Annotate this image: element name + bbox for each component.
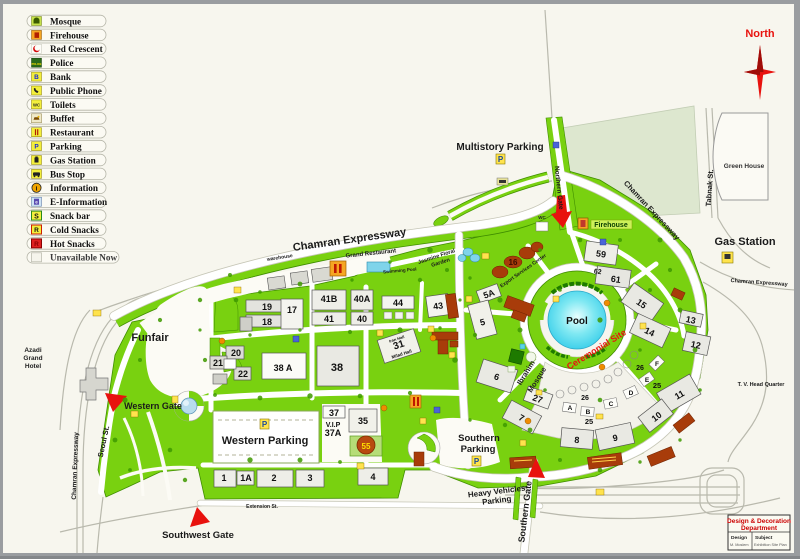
svg-text:Red Crescent: Red Crescent (50, 44, 104, 54)
svg-text:WC: WC (538, 215, 546, 220)
svg-text:Mosque: Mosque (50, 16, 81, 26)
svg-text:WC: WC (33, 103, 40, 108)
svg-text:37: 37 (329, 408, 339, 418)
svg-text:P: P (474, 457, 480, 466)
svg-text:40: 40 (357, 314, 367, 324)
svg-text:43: 43 (432, 300, 443, 311)
svg-text:Extension St.: Extension St. (246, 504, 278, 510)
svg-text:P: P (34, 144, 39, 151)
svg-text:Toilets: Toilets (50, 100, 76, 110)
svg-text:13: 13 (685, 314, 697, 326)
svg-text:Chamran Expressway: Chamran Expressway (730, 278, 788, 288)
svg-text:Southern: Southern (458, 433, 500, 444)
svg-text:C: C (609, 401, 614, 408)
svg-text:Public Phone: Public Phone (50, 86, 102, 96)
svg-text:Firehouse: Firehouse (50, 30, 89, 40)
svg-text:POLICE: POLICE (32, 62, 42, 66)
svg-text:B: B (586, 409, 591, 416)
svg-text:62: 62 (593, 268, 602, 276)
svg-text:19: 19 (262, 302, 272, 312)
svg-text:Department: Department (741, 525, 778, 532)
svg-text:Bus Stop: Bus Stop (50, 169, 85, 179)
svg-text:R: R (34, 241, 39, 248)
svg-text:21: 21 (213, 358, 223, 368)
svg-text:22: 22 (238, 369, 248, 379)
svg-text:Pool: Pool (566, 316, 588, 327)
svg-text:Buffet: Buffet (50, 114, 75, 124)
svg-text:Multistory Parking: Multistory Parking (456, 142, 543, 153)
svg-text:41: 41 (324, 314, 334, 324)
svg-text:Parking: Parking (461, 444, 496, 455)
svg-text:i: i (36, 185, 38, 192)
svg-text:Green House: Green House (724, 163, 765, 170)
svg-text:26: 26 (581, 395, 589, 402)
svg-text:Tabnak St.: Tabnak St. (704, 169, 716, 207)
svg-text:Bank: Bank (50, 72, 72, 82)
svg-text:A: A (568, 405, 573, 412)
svg-text:4: 4 (370, 472, 375, 482)
svg-text:Hotel: Hotel (25, 363, 41, 370)
svg-text:Firehouse: Firehouse (594, 222, 628, 229)
svg-text:61: 61 (610, 274, 621, 285)
svg-text:Chamran Expressway: Chamran Expressway (71, 432, 80, 500)
svg-text:38 A: 38 A (274, 363, 293, 373)
svg-text:E-Information: E-Information (50, 197, 107, 207)
svg-text:D: D (629, 390, 634, 397)
svg-text:Parking: Parking (50, 142, 82, 152)
svg-text:8: 8 (574, 435, 580, 445)
svg-text:Gas Station: Gas Station (714, 236, 775, 248)
svg-text:M. Moslem: M. Moslem (730, 543, 749, 547)
svg-text:Grand: Grand (23, 355, 42, 362)
svg-text:Exhibition Site Plan: Exhibition Site Plan (754, 543, 787, 547)
svg-text:16: 16 (509, 258, 518, 267)
svg-text:2: 2 (271, 473, 276, 483)
svg-text:Cold Snacks: Cold Snacks (50, 225, 99, 235)
svg-text:Southwest Gate: Southwest Gate (162, 530, 234, 541)
svg-text:38: 38 (331, 362, 343, 374)
svg-text:Funfair: Funfair (131, 332, 169, 344)
svg-text:35: 35 (358, 416, 368, 426)
svg-text:Design: Design (731, 535, 747, 541)
svg-text:F: F (655, 361, 659, 368)
svg-text:Unavailable Now: Unavailable Now (50, 253, 117, 263)
svg-text:1A: 1A (240, 473, 252, 483)
svg-text:44: 44 (393, 298, 403, 308)
svg-text:Subject: Subject (755, 535, 773, 541)
svg-text:40A: 40A (354, 294, 371, 304)
svg-text:P: P (498, 155, 504, 164)
svg-text:55: 55 (362, 442, 371, 451)
svg-text:Azadi: Azadi (24, 347, 42, 354)
svg-text:3: 3 (307, 473, 312, 483)
svg-text:25: 25 (585, 417, 593, 426)
svg-text:17: 17 (287, 305, 297, 315)
svg-text:E: E (645, 377, 650, 384)
svg-text:R: R (34, 227, 39, 234)
svg-text:North: North (745, 28, 775, 40)
svg-text:Police: Police (50, 58, 73, 68)
svg-text:Restaurant: Restaurant (50, 128, 95, 138)
svg-text:T. V. Head Quarter: T. V. Head Quarter (738, 382, 786, 388)
svg-text:41B: 41B (321, 294, 338, 304)
svg-text:25: 25 (653, 381, 661, 390)
svg-text:Information: Information (50, 183, 98, 193)
svg-text:59: 59 (595, 248, 606, 259)
svg-text:Snack bar: Snack bar (50, 211, 90, 221)
svg-text:Western Parking: Western Parking (222, 435, 309, 447)
svg-text:P: P (262, 420, 268, 429)
svg-text:20: 20 (231, 348, 241, 358)
svg-text:S: S (34, 213, 39, 220)
svg-text:18: 18 (262, 317, 272, 327)
svg-text:Hot Snacks: Hot Snacks (50, 239, 95, 249)
svg-text:26: 26 (636, 365, 644, 372)
svg-text:Design & Decoration: Design & Decoration (727, 518, 791, 525)
svg-text:37A: 37A (325, 428, 342, 438)
svg-text:1: 1 (221, 473, 226, 483)
svg-text:B: B (34, 74, 39, 81)
svg-text:Gas Station: Gas Station (50, 155, 96, 165)
